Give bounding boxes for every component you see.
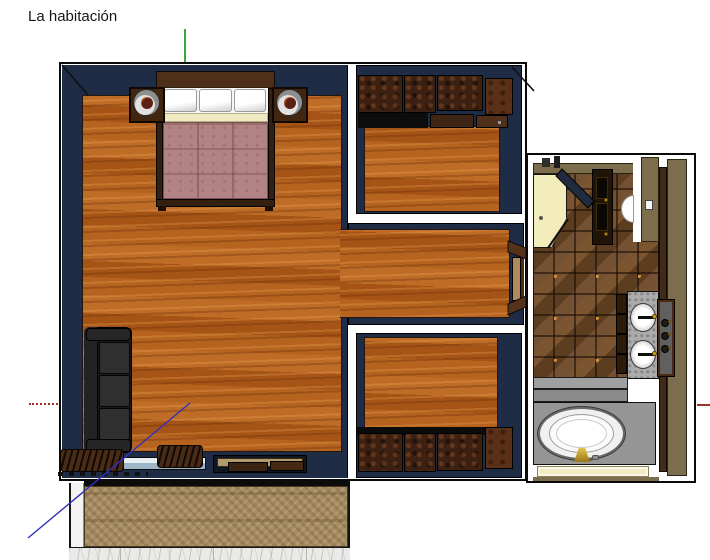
balcony-door-panel-a: [228, 462, 268, 472]
marble-joint-2: [213, 548, 214, 560]
closet-bottom-floor: [364, 337, 498, 428]
bench-shadow-dots: [58, 472, 148, 476]
green-axis-line: [184, 29, 186, 62]
closet-bottom-cabinet-4: [485, 427, 513, 469]
bathroom-door-edge: [520, 247, 524, 309]
bed-foot-rail: [156, 199, 275, 207]
lamp-right: [276, 89, 303, 116]
mirror-knob-accent-1: [668, 320, 671, 323]
closet-top-floor: [364, 126, 500, 212]
bed-pillow-1: [164, 89, 197, 112]
modeler-viewport[interactable]: La habitación: [0, 0, 710, 560]
tall-cabinet-knob-b: [604, 232, 608, 236]
closet-bottom-cabinet-1: [358, 433, 403, 472]
balcony-right-edge: [348, 486, 350, 547]
closet-top-cabinet-4: [485, 78, 513, 115]
balcony-carpet: [84, 486, 348, 547]
corridor-floor: [340, 229, 510, 318]
bed-pillow-3: [234, 89, 266, 112]
scene-title: La habitación: [28, 8, 117, 25]
closet-bottom-cabinet-2: [404, 433, 436, 472]
bed-spread: [163, 122, 268, 199]
bathtub-basin: [556, 419, 607, 448]
balcony-top-wall: [84, 479, 350, 486]
faucet-knob-top: [652, 314, 657, 319]
bed-sheet-band: [163, 113, 268, 122]
closet-top-shelf-a: [430, 114, 474, 128]
doorway-gap: [633, 156, 641, 242]
bathroom-bottom-wall: [533, 477, 659, 481]
mirror-knob-accent-3: [668, 346, 671, 349]
closet-top-cabinet-3: [437, 75, 483, 111]
tub-faucet-part: [592, 455, 599, 460]
closet-top-shelf-b: [476, 115, 508, 128]
red-axis-dotted: [29, 403, 58, 405]
shower-drain: [539, 216, 543, 220]
bed-foot-left: [158, 206, 166, 211]
sofa-cushion-3: [99, 408, 130, 440]
marble-joint-1: [120, 548, 121, 560]
balcony-door-panel-b: [270, 461, 304, 471]
marble-joint-3: [306, 548, 307, 560]
sofa-cushion-2: [99, 375, 130, 407]
tub-step-lower: [533, 389, 628, 402]
sofa-cushion-1: [99, 342, 130, 374]
sofa-armrest-top: [86, 328, 131, 341]
light-switch: [645, 200, 653, 210]
wall-fixture-a: [542, 158, 550, 167]
bed-pillow-2: [199, 89, 232, 112]
closet-top-cabinet-2: [404, 75, 436, 113]
tall-cabinet-panel-b: [596, 203, 608, 231]
tub-step-upper: [533, 377, 628, 389]
bath-mat: [537, 466, 649, 477]
wall-fixture-b: [554, 156, 560, 168]
closet-top-shelf-handle: [497, 120, 502, 125]
closet-top-cabinet-shadow: [358, 112, 428, 128]
mirror-knob-accent-2: [668, 333, 671, 336]
red-axis-solid: [697, 404, 710, 406]
lamp-left: [133, 89, 160, 116]
sofa-back: [84, 327, 98, 453]
tall-cabinet-knob-a: [604, 198, 608, 202]
tall-cabinet-panel-a: [596, 177, 608, 199]
faucet-knob-bottom: [652, 351, 657, 356]
vanity-cabinet: [616, 294, 627, 374]
closet-bottom-cabinet-3: [437, 433, 483, 471]
bed-foot-right: [265, 206, 273, 211]
bench-slats-b: [157, 445, 203, 468]
closet-top-cabinet-1: [358, 75, 403, 113]
balcony-marble-edge: [69, 547, 350, 560]
bench-slats-a: [60, 449, 124, 472]
